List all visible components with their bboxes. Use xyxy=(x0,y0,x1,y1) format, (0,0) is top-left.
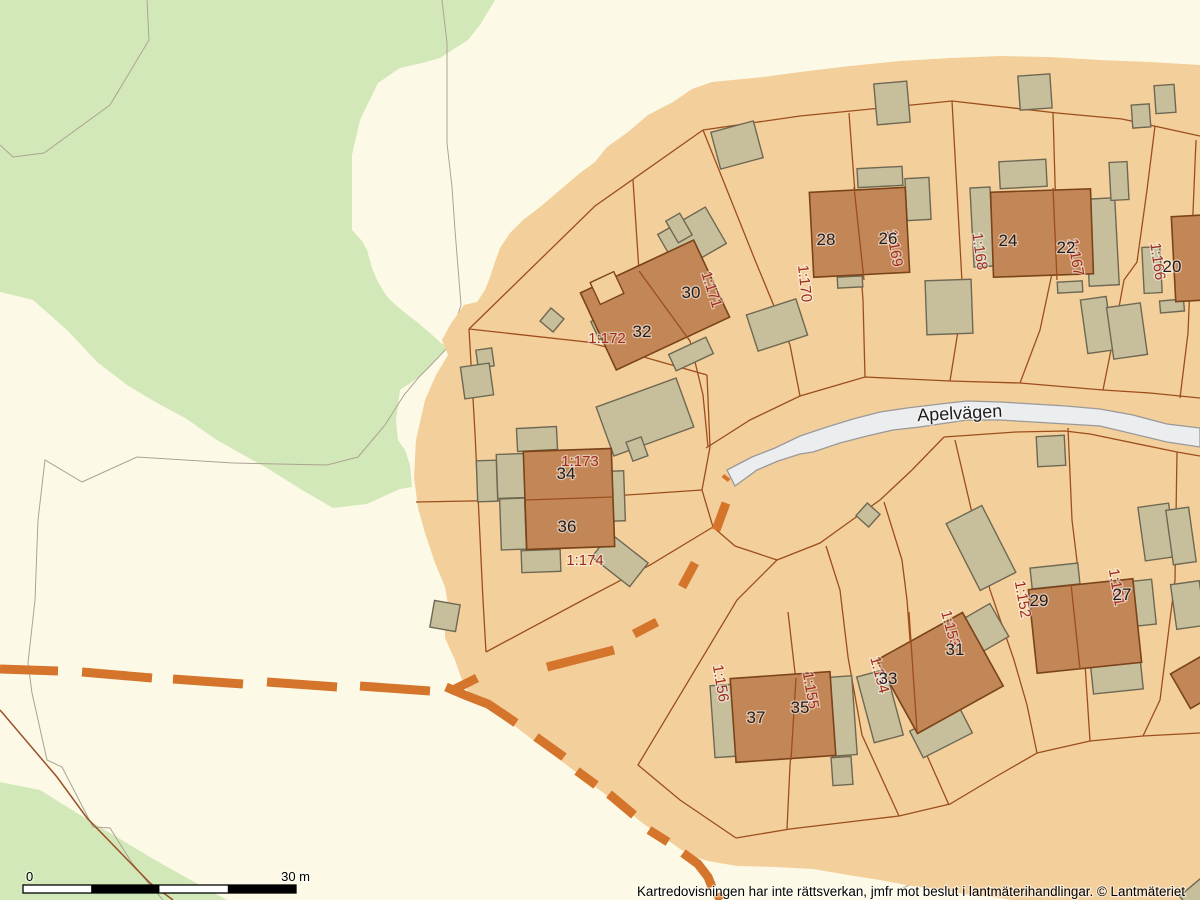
svg-text:22: 22 xyxy=(1057,238,1076,257)
svg-text:1:172: 1:172 xyxy=(588,330,626,347)
svg-text:0: 0 xyxy=(26,869,33,884)
svg-text:Kartredovisningen har inte rät: Kartredovisningen har inte rättsverkan, … xyxy=(637,884,1185,899)
svg-text:1:174: 1:174 xyxy=(566,552,604,569)
svg-text:29: 29 xyxy=(1030,591,1049,610)
svg-text:35: 35 xyxy=(791,698,810,717)
svg-text:34: 34 xyxy=(557,464,576,483)
svg-text:28: 28 xyxy=(817,230,836,249)
svg-text:20: 20 xyxy=(1163,257,1182,276)
svg-text:27: 27 xyxy=(1113,585,1132,604)
svg-text:37: 37 xyxy=(747,708,766,727)
svg-text:26: 26 xyxy=(879,229,898,248)
svg-text:36: 36 xyxy=(558,517,577,536)
svg-text:33: 33 xyxy=(879,669,898,688)
svg-text:30 m: 30 m xyxy=(281,869,310,884)
svg-text:31: 31 xyxy=(946,640,965,659)
svg-text:32: 32 xyxy=(633,322,652,341)
svg-text:24: 24 xyxy=(999,231,1018,250)
svg-text:30: 30 xyxy=(682,283,701,302)
